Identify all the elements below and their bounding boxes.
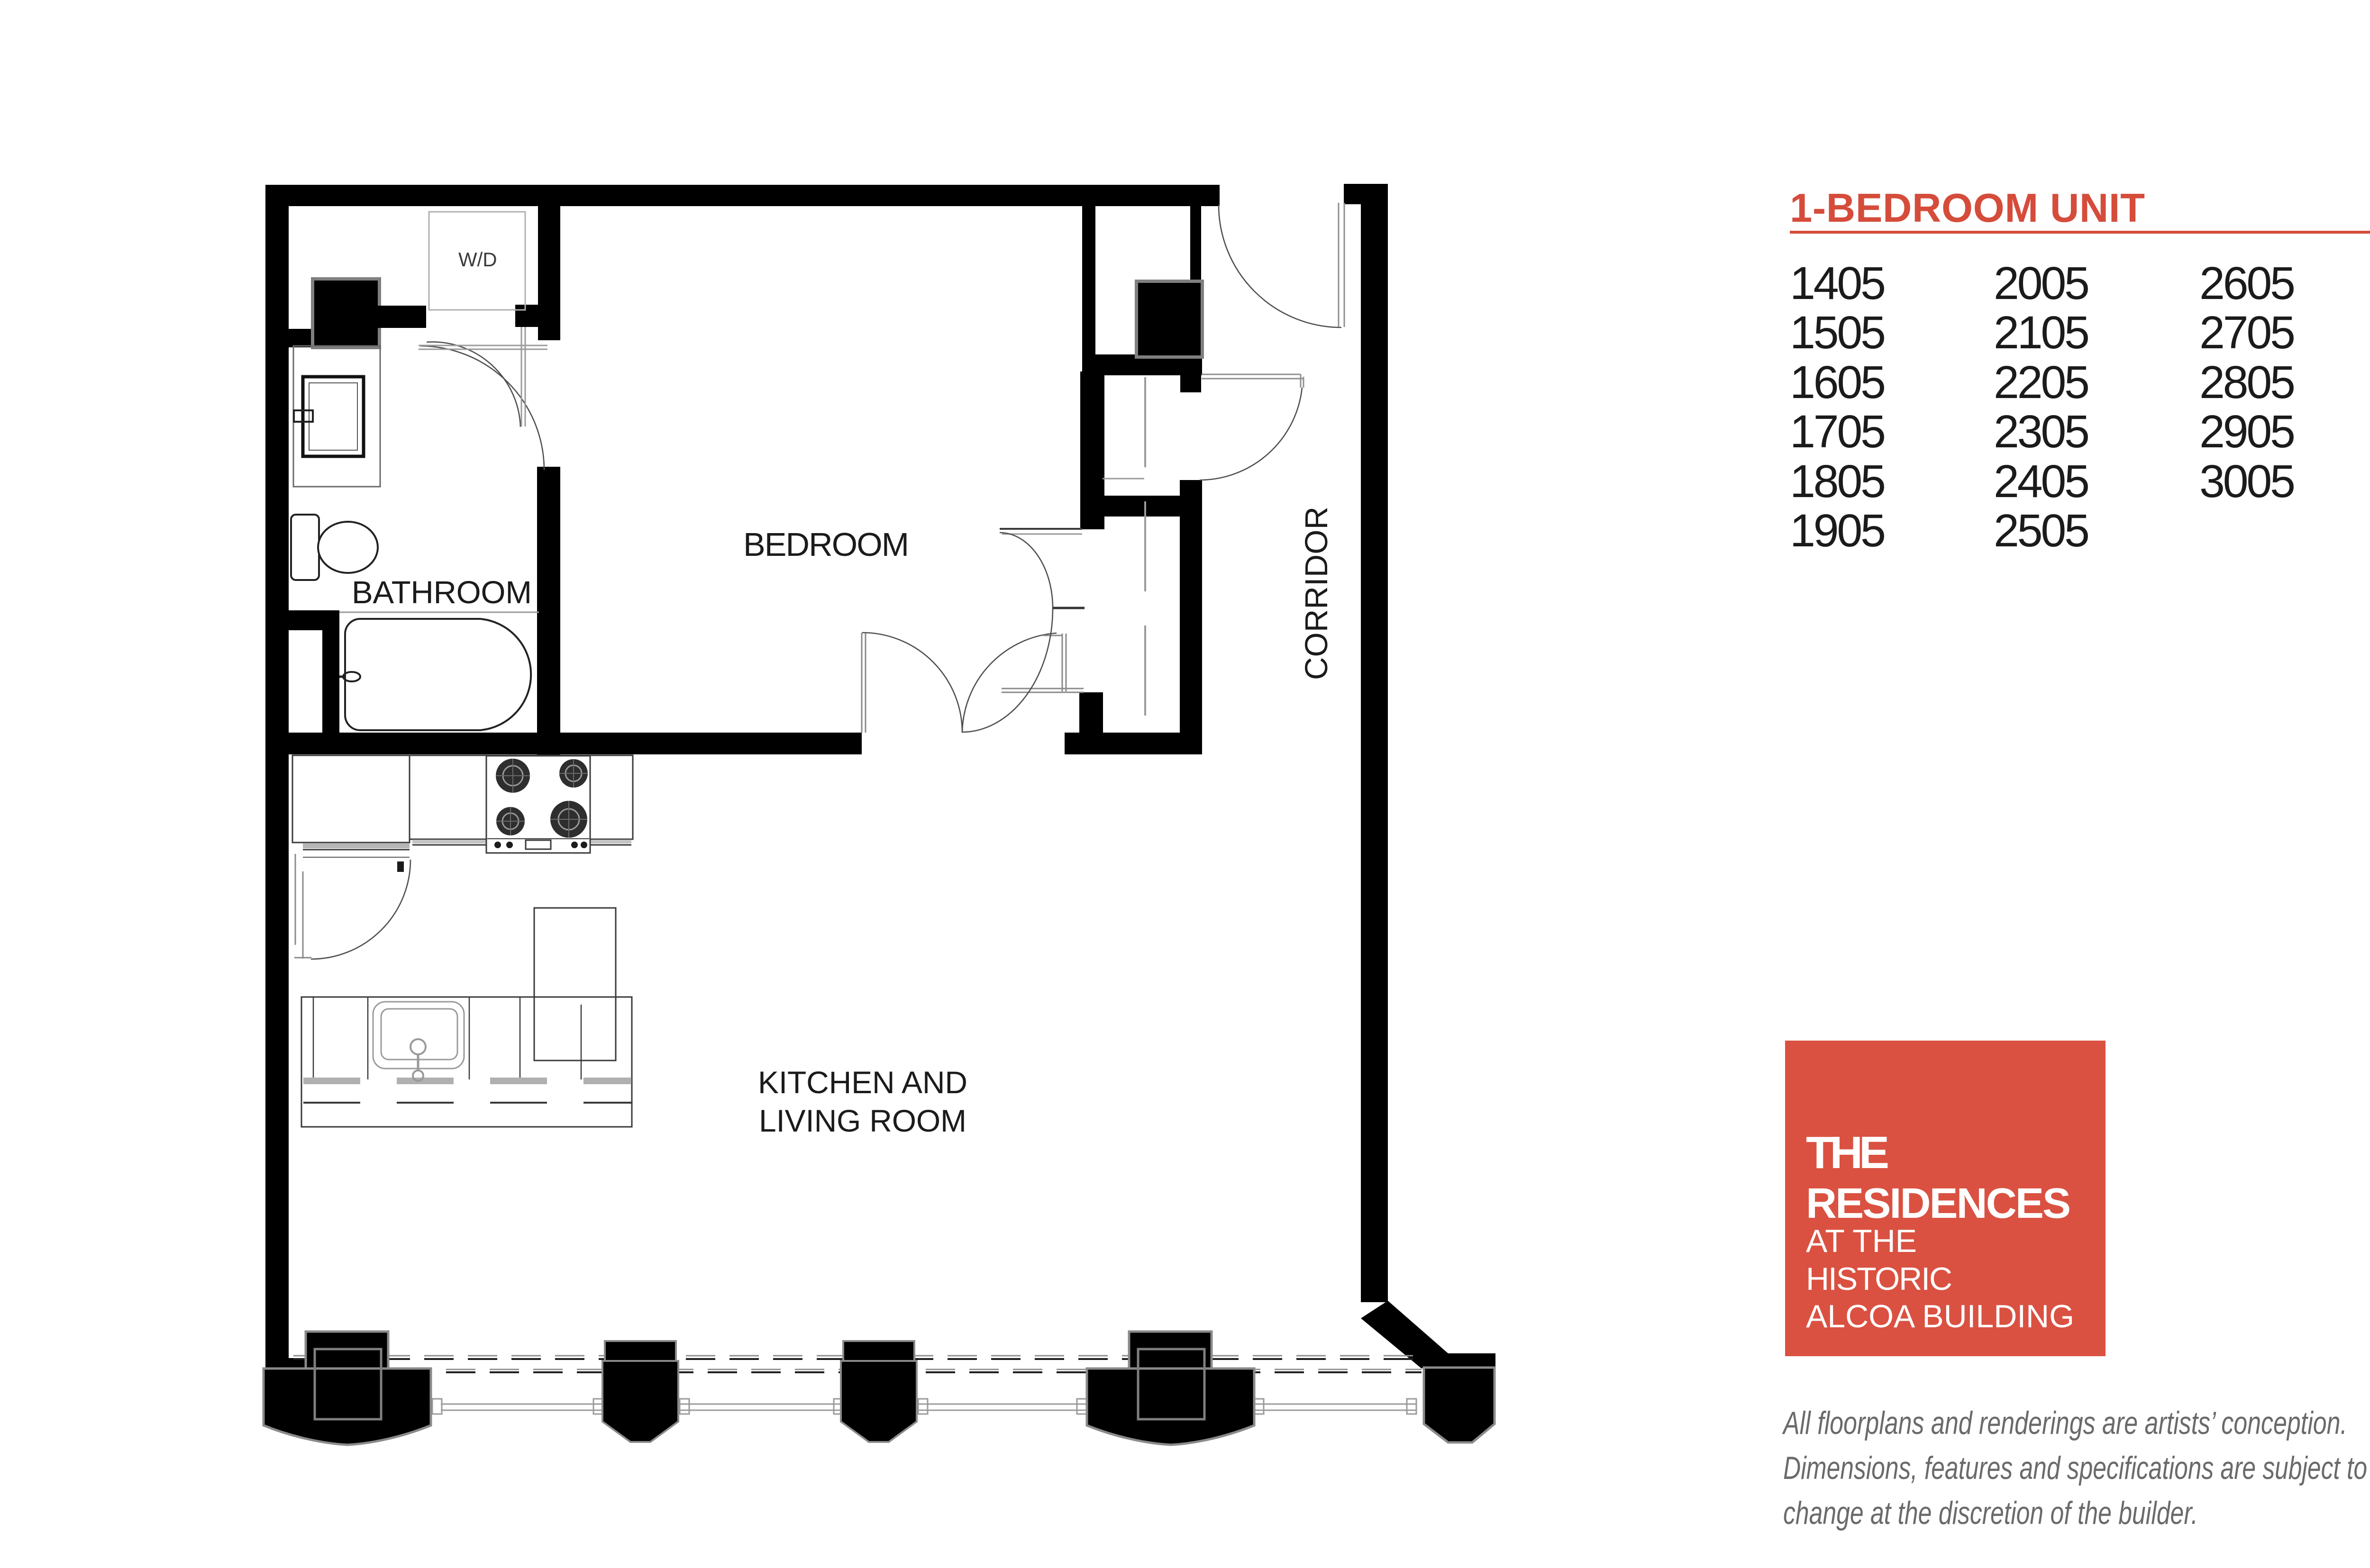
svg-text:LIVING ROOM: LIVING ROOM (759, 1103, 966, 1138)
svg-text:1705: 1705 (1790, 406, 1886, 457)
svg-text:CORRIDOR: CORRIDOR (1299, 507, 1334, 680)
svg-text:1505: 1505 (1790, 307, 1886, 358)
svg-text:BATHROOM: BATHROOM (352, 575, 532, 610)
svg-text:2705: 2705 (2199, 307, 2296, 358)
svg-text:2505: 2505 (1994, 505, 2090, 556)
svg-text:2805: 2805 (2199, 356, 2296, 408)
svg-text:2405: 2405 (1994, 455, 2090, 507)
svg-text:HISTORIC: HISTORIC (1806, 1261, 1952, 1297)
svg-text:RESIDENCES: RESIDENCES (1806, 1180, 2071, 1227)
svg-text:1805: 1805 (1790, 455, 1886, 507)
svg-text:2905: 2905 (2199, 406, 2296, 457)
svg-text:2205: 2205 (1994, 356, 2090, 408)
svg-text:2105: 2105 (1994, 307, 2090, 358)
svg-text:change at the discretion of th: change at the discretion of the builder. (1783, 1495, 2198, 1531)
svg-text:AT THE: AT THE (1806, 1223, 1917, 1259)
svg-text:3005: 3005 (2199, 455, 2296, 507)
svg-text:2005: 2005 (1994, 257, 2090, 309)
svg-text:BEDROOM: BEDROOM (743, 526, 909, 563)
svg-text:1405: 1405 (1790, 257, 1886, 309)
svg-text:2305: 2305 (1994, 406, 2090, 457)
svg-text:ALCOA BUILDING: ALCOA BUILDING (1806, 1298, 2074, 1334)
svg-text:THE: THE (1806, 1127, 1889, 1178)
svg-text:2605: 2605 (2199, 257, 2296, 309)
svg-text:1905: 1905 (1790, 505, 1886, 556)
svg-text:1605: 1605 (1790, 356, 1886, 408)
svg-text:KITCHEN AND: KITCHEN AND (758, 1065, 967, 1100)
svg-text:W/D: W/D (458, 248, 497, 271)
svg-text:Dimensions, features and speci: Dimensions, features and specifications … (1783, 1450, 2367, 1486)
svg-text:1-BEDROOM UNIT: 1-BEDROOM UNIT (1790, 186, 2145, 231)
svg-text:All floorplans and renderings: All floorplans and renderings are artist… (1782, 1405, 2347, 1441)
